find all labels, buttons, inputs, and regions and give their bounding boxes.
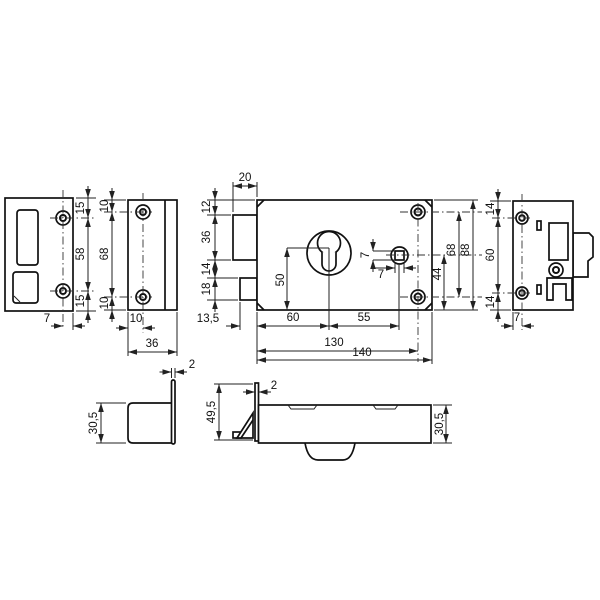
dim-label-case-depth: 30,5	[434, 413, 446, 435]
slot	[537, 285, 541, 294]
dim-label-bottom-margin: 10	[99, 297, 111, 310]
lock-body-bottom-view: 49,5 2 30,5	[206, 380, 452, 460]
dim-label-bolt-throw: 13,5	[197, 313, 219, 325]
latch-bolt	[233, 215, 257, 260]
dim-label-cylinder-to-spindle: 55	[358, 312, 371, 324]
dim-label-top-margin: 15	[75, 202, 87, 215]
dim-label-bolt-height: 18	[201, 283, 213, 296]
dim-label-latch-width: 20	[239, 172, 252, 184]
dim-label-top-to-latch: 12	[201, 201, 213, 214]
strike-plate-front-view: 15 58 15 7	[5, 186, 96, 330]
dim-label-latch-height: 36	[201, 231, 213, 244]
dim-label-hole-spacing: 58	[75, 248, 87, 261]
dim-label-bottom-margin: 14	[485, 295, 497, 308]
dim-label-plate-thickness: 2	[189, 359, 195, 371]
dim-label-hole-to-edge: 7	[44, 313, 50, 325]
dim-label-faceplate-width: 49,5	[206, 401, 218, 423]
dim-label-backset: 60	[287, 312, 300, 324]
dim-label-faceplate-thickness: 2	[271, 380, 277, 392]
dim-label-hole-spacing: 60	[485, 249, 497, 262]
dim-label-hole-to-edge: 7	[514, 312, 520, 324]
technical-drawing-page: 15 58 15 7 10 68	[0, 0, 600, 600]
dim-label-hole-spacing: 68	[99, 248, 111, 261]
dim-label-spindle-to-bottom: 44	[432, 267, 444, 280]
lock-body-side-view: 14 60 14 7	[485, 189, 593, 330]
cylinder-housing	[549, 223, 568, 260]
dim-label-total-length: 140	[352, 347, 371, 359]
faceplate-body	[128, 200, 177, 310]
dead-bolt	[240, 278, 257, 300]
spindle-square	[395, 251, 404, 260]
dim-label-box-depth: 30,5	[88, 412, 100, 434]
dim-label-hole-axis-offset: 10	[130, 313, 143, 325]
dim-label-bottom-margin: 15	[75, 295, 87, 308]
dim-label-top-margin: 14	[485, 202, 497, 215]
dim-label-latch-to-bolt: 14	[201, 262, 213, 275]
strike-plate-profile	[172, 380, 176, 444]
dim-label-spindle-height: 7	[360, 252, 372, 258]
dim-label-cylinder-to-bottom: 50	[275, 274, 287, 287]
case-bump	[305, 443, 355, 460]
latch-cutout	[17, 210, 38, 265]
dim-label-top-margin: 10	[99, 200, 111, 213]
latch-bolt-side	[573, 233, 593, 277]
strike-box-profile	[128, 403, 172, 443]
faceplate-front-view: 10 68 10 10 36	[99, 188, 177, 356]
strike-plate-bottom-view: 2 30,5	[88, 359, 195, 444]
lock-body-front-view: 20 12 36 14 18 13,5 60 55 130 140 50 7 7…	[197, 172, 482, 364]
spindle-boss	[549, 263, 563, 277]
slot	[537, 221, 541, 230]
lock-case-bottom	[259, 405, 432, 443]
dim-label-width: 36	[146, 338, 159, 350]
dim-label-total-height: 88	[460, 244, 472, 257]
dim-label-hole-spacing: 68	[446, 244, 458, 257]
dim-label-length-to-hole-axis: 130	[324, 337, 343, 349]
latch-bevel	[237, 413, 253, 438]
lock-technical-drawing: 15 58 15 7 10 68	[0, 0, 600, 600]
dim-label-spindle-width: 7	[378, 269, 384, 281]
